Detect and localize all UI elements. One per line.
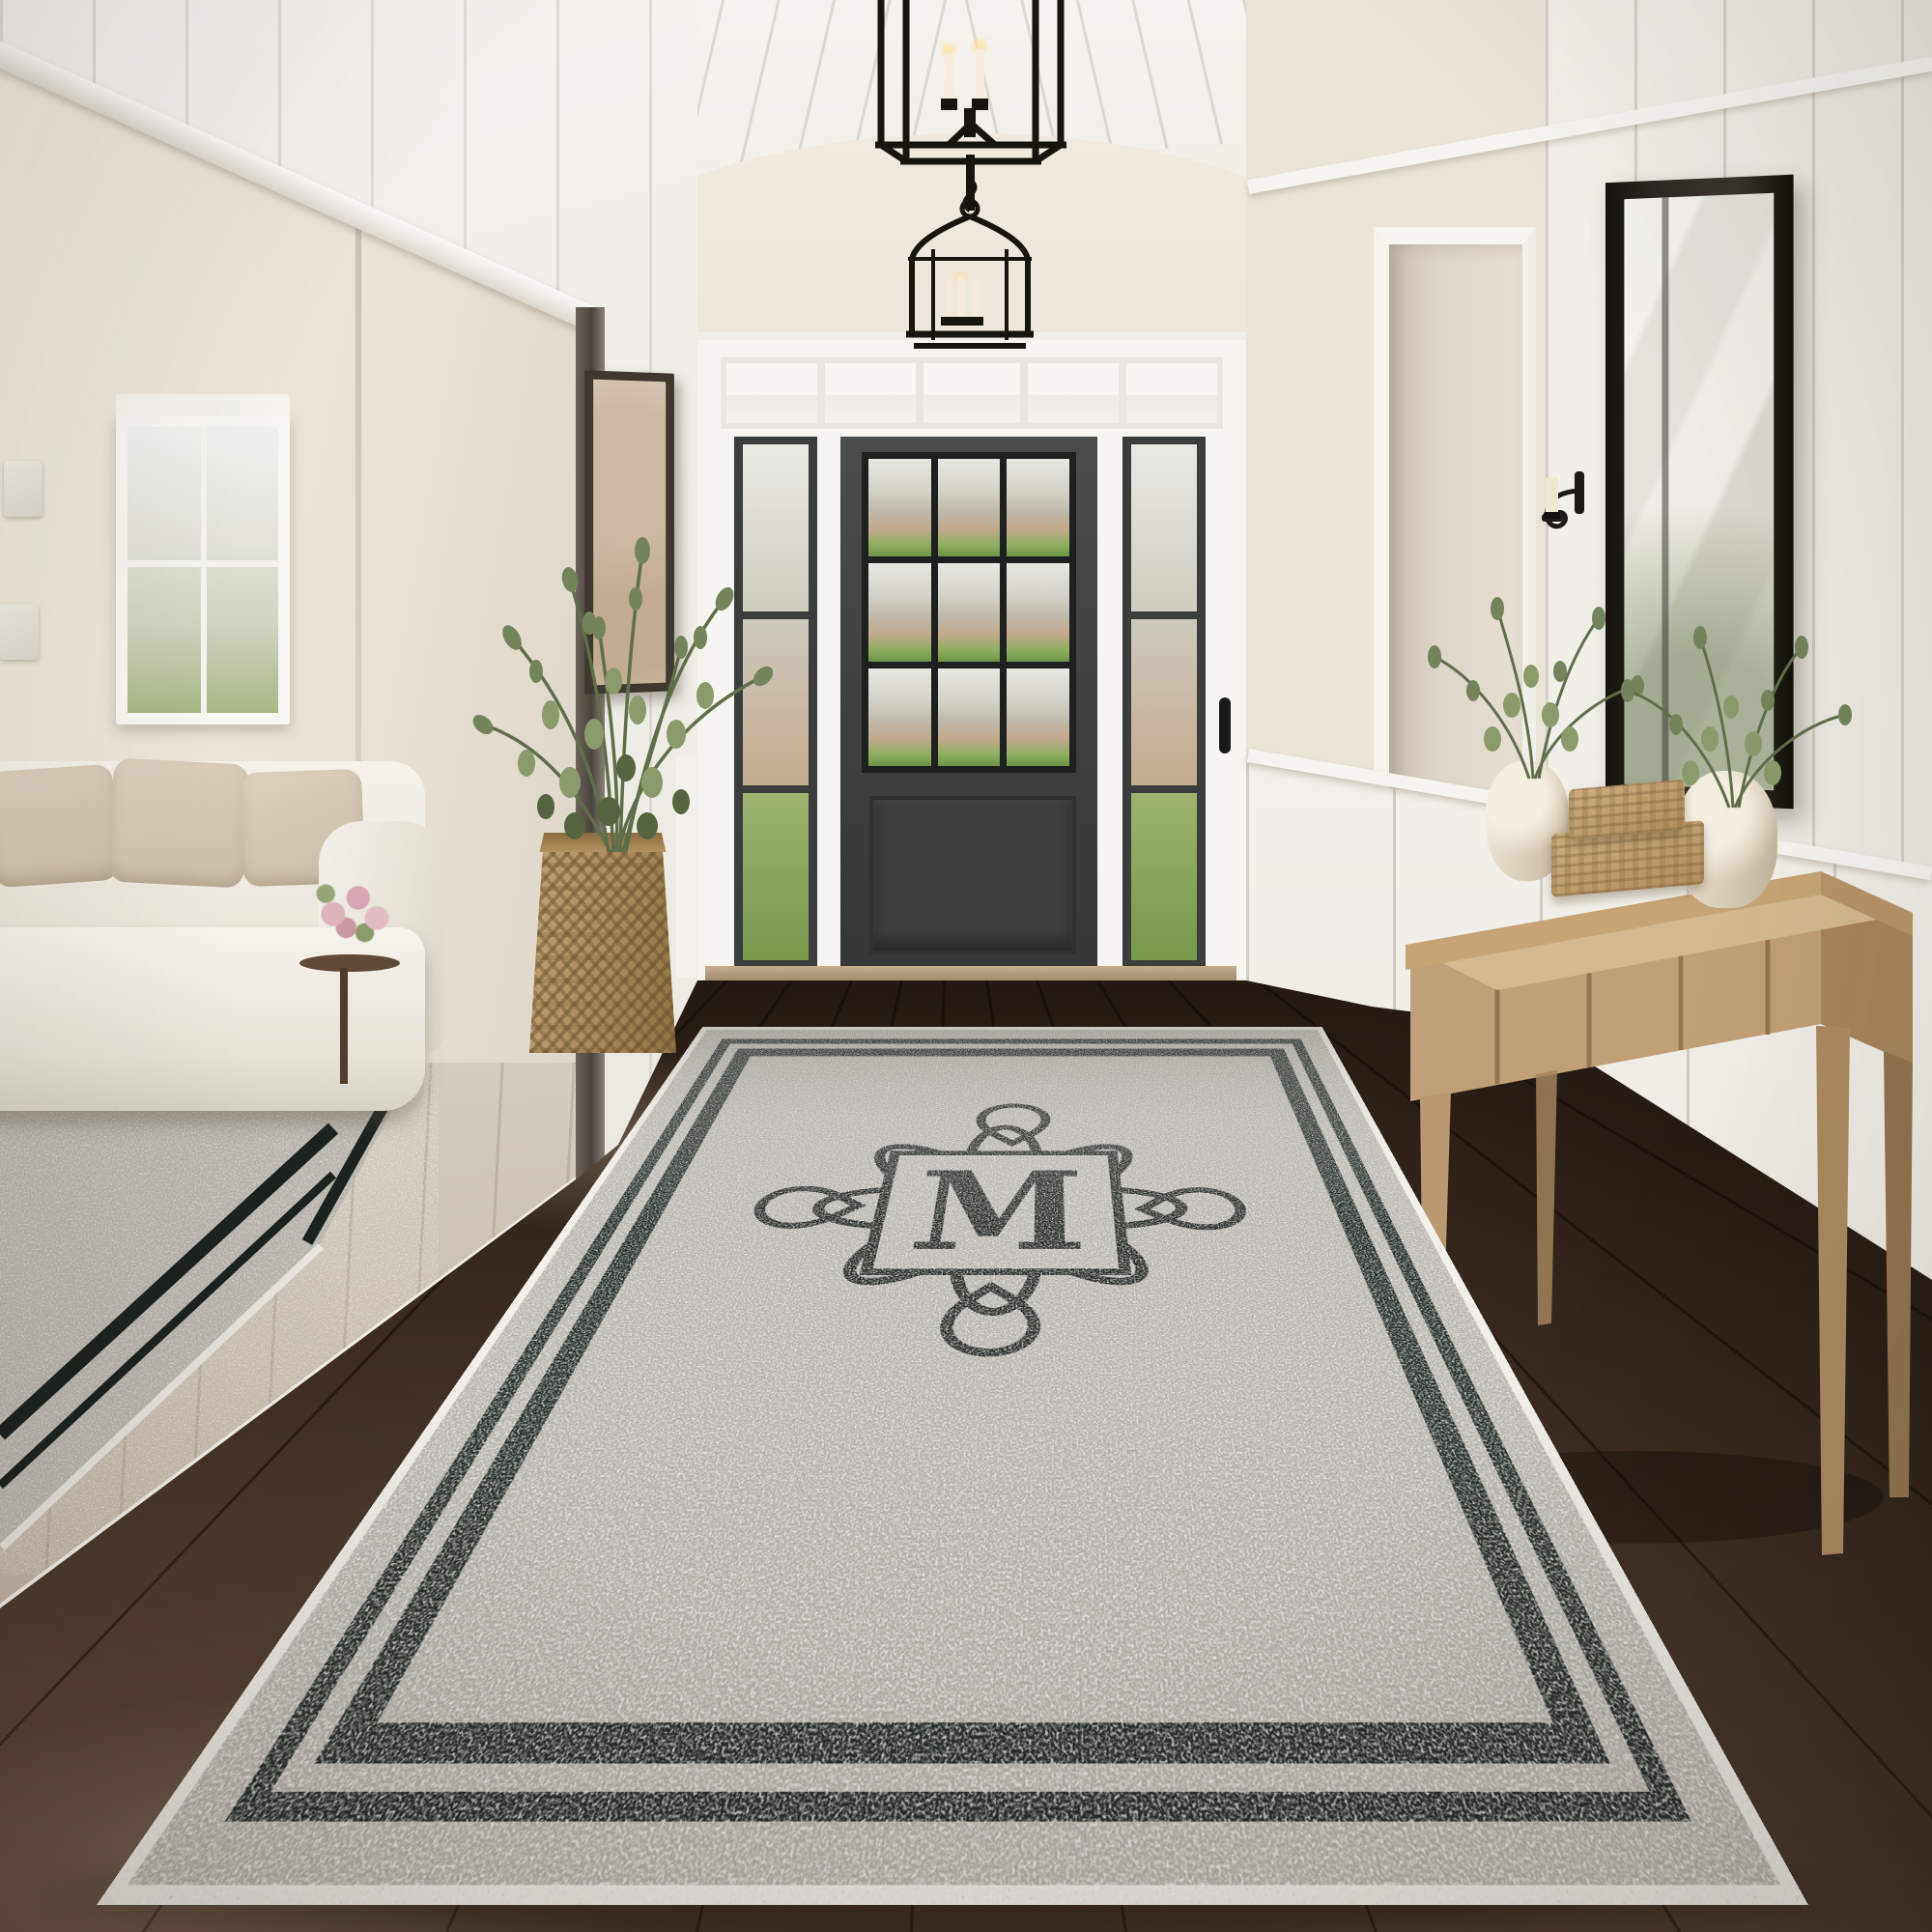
pendant-lights bbox=[860, 0, 1082, 367]
transom-pane bbox=[923, 363, 1020, 423]
sidelight-pane bbox=[1131, 793, 1197, 960]
entryway-photo: M bbox=[0, 0, 1932, 1932]
sofa-pillow bbox=[108, 757, 250, 888]
front-door bbox=[840, 437, 1097, 974]
console-plant-right bbox=[1594, 599, 1864, 811]
door-pane bbox=[1007, 459, 1069, 556]
cage-pendant-light bbox=[875, 0, 1066, 162]
side-table bbox=[299, 954, 400, 972]
door-panel bbox=[869, 796, 1076, 954]
door-pane bbox=[938, 668, 1001, 766]
transom-pane bbox=[825, 363, 916, 423]
door-pane bbox=[1007, 668, 1069, 766]
door-pane bbox=[938, 459, 1001, 556]
window-mullion bbox=[128, 560, 278, 567]
sidelight-right bbox=[1122, 437, 1206, 968]
door-pane bbox=[868, 668, 931, 766]
sidelight-pane bbox=[1131, 444, 1197, 611]
transom-window bbox=[721, 357, 1223, 429]
light-switch-plate bbox=[4, 461, 43, 517]
door-pane bbox=[938, 563, 1001, 661]
light-switch-plate bbox=[0, 604, 39, 660]
flower-bouquet bbox=[307, 869, 400, 951]
monogram-rug: M bbox=[97, 1027, 1808, 1905]
door-pane bbox=[1007, 563, 1069, 661]
wall-sconce bbox=[1524, 421, 1602, 556]
basket-plant bbox=[454, 493, 802, 860]
door-pane bbox=[868, 563, 931, 661]
transom-pane bbox=[726, 363, 817, 423]
lantern-pendant-light bbox=[906, 201, 1034, 346]
transom-pane bbox=[1126, 363, 1217, 423]
wicker-planter-basket bbox=[529, 833, 676, 1053]
sofa-pillow bbox=[0, 764, 120, 889]
window-mullion bbox=[201, 427, 207, 713]
sidelight-pane bbox=[1131, 619, 1197, 786]
monogram-rug-wrapper: M bbox=[0, 1024, 1932, 1908]
door-pane bbox=[868, 459, 931, 556]
living-room-window bbox=[116, 415, 290, 724]
door-handle-lever bbox=[1207, 719, 1233, 727]
transom-pane bbox=[1028, 363, 1119, 423]
door-glass-grid bbox=[862, 452, 1076, 773]
